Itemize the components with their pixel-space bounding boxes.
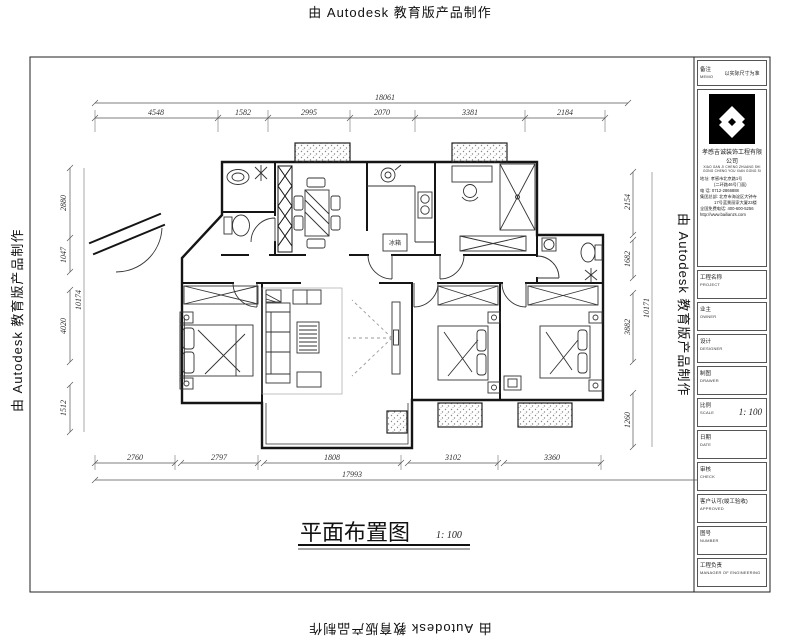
dimension-bottom: 2760 2797 1808 3102 3360 17993 xyxy=(92,453,713,483)
field-drawer-en: DRAWER xyxy=(700,378,764,384)
field-approved-zh: 客户认可(竣工验收) xyxy=(700,499,764,506)
field-owner-en: OWNER xyxy=(700,314,764,320)
field-date-en: DATE xyxy=(700,442,764,448)
memo-box: 备注 MEMO 以实际尺寸为准 xyxy=(697,60,767,86)
svg-text:3381: 3381 xyxy=(461,108,478,117)
cad-sheet: 由 Autodesk 教育版产品制作 由 Autodesk 教育版产品制作 由 … xyxy=(0,0,800,640)
address-label: 地址: xyxy=(700,176,710,181)
svg-text:3360: 3360 xyxy=(543,453,560,462)
dining-set xyxy=(294,178,340,248)
bed xyxy=(180,325,253,376)
fridge-label: 冰箱 xyxy=(389,239,401,247)
field-owner-zh: 业主 xyxy=(700,307,764,314)
svg-text:2070: 2070 xyxy=(374,108,390,117)
svg-text:1047: 1047 xyxy=(59,246,68,263)
phone-label: 电 话: xyxy=(700,188,711,193)
svg-text:1512: 1512 xyxy=(59,400,68,416)
bedroom1-furniture xyxy=(180,286,258,389)
svg-text:18061: 18061 xyxy=(375,93,395,102)
bathroom1-fixtures xyxy=(224,165,267,236)
field-check: 审核 CHECK xyxy=(697,462,767,491)
living-room-furniture xyxy=(262,288,400,394)
field-manager-en: MANAGER OF ENGINEERING xyxy=(700,570,764,576)
field-date: 日期 DATE xyxy=(697,430,767,459)
svg-text:1808: 1808 xyxy=(324,453,340,462)
field-owner: 业主 OWNER xyxy=(697,302,767,331)
study-furniture xyxy=(452,164,535,251)
field-date-zh: 日期 xyxy=(700,435,764,442)
field-check-zh: 审核 xyxy=(700,467,764,474)
svg-text:1260: 1260 xyxy=(623,412,632,428)
svg-text:2797: 2797 xyxy=(211,453,228,462)
svg-text:2154: 2154 xyxy=(623,194,632,210)
title-block: 备注 MEMO 以实际尺寸为准 孝感吉诚装饰工程有限公司 XIAO GAN JI… xyxy=(697,60,767,590)
hotline-label: 全国免费电话: xyxy=(700,206,726,211)
field-project-en: PROJECT xyxy=(700,282,764,288)
floor-plan-canvas: 冰箱 18061 4548 1582 2995 2070 3381 2184 xyxy=(0,0,800,640)
kitchen-fixtures xyxy=(367,165,435,251)
svg-text:10174: 10174 xyxy=(74,290,83,310)
company-website: http://www.bailianzs.com xyxy=(700,212,764,218)
field-check-en: CHECK xyxy=(700,474,764,480)
dimension-left: 2880 1047 4020 1512 10174 xyxy=(59,165,84,435)
memo-label-en: MEMO xyxy=(700,74,720,80)
field-designer: 设计 DESIGNER xyxy=(697,334,767,363)
svg-text:2184: 2184 xyxy=(557,108,573,117)
company-logo xyxy=(709,94,755,144)
field-scale: 比例 SCALE 1: 100 xyxy=(697,398,767,427)
drawing-title-text: 平面布置图 xyxy=(300,520,410,545)
field-project: 工程名称 PROJECT xyxy=(697,270,767,299)
svg-text:1582: 1582 xyxy=(235,108,251,117)
dimension-right: 2154 1682 3882 1260 10171 xyxy=(623,169,652,450)
drawing-title: 平面布置图 1: 100 xyxy=(298,520,470,549)
bathroom2-fixtures xyxy=(542,238,602,282)
company-pinyin-2: GONG CHENG YOU XIAN GONG SI xyxy=(700,169,764,173)
coffee-table xyxy=(297,322,319,353)
field-designer-en: DESIGNER xyxy=(700,346,764,352)
phone-value: 0712-2866888 xyxy=(712,188,739,193)
svg-text:2995: 2995 xyxy=(301,108,317,117)
memo-value: 以实际尺寸为准 xyxy=(720,70,764,77)
field-manager: 工程负责 MANAGER OF ENGINEERING xyxy=(697,558,767,587)
hotline-value: 400-600-5256 xyxy=(727,206,753,211)
svg-text:2760: 2760 xyxy=(127,453,143,462)
field-approved: 客户认可(竣工验收) APPROVED xyxy=(697,494,767,523)
field-number-en: NUMBER xyxy=(700,538,764,544)
field-approved-en: APPROVED xyxy=(700,506,764,512)
field-designer-zh: 设计 xyxy=(700,339,764,346)
field-project-zh: 工程名称 xyxy=(700,275,764,282)
company-name: 孝感吉诚装饰工程有限公司 xyxy=(700,147,764,165)
field-scale-value: 1: 100 xyxy=(739,407,762,417)
hq-label: 集团总部: xyxy=(700,194,718,199)
hq-line1: 北京市海淀区大钟寺 xyxy=(719,194,757,199)
field-drawer-zh: 制图 xyxy=(700,371,764,378)
svg-text:10171: 10171 xyxy=(642,298,651,318)
svg-text:2880: 2880 xyxy=(59,195,68,211)
memo-label-zh: 备注 xyxy=(700,67,720,74)
svg-text:1682: 1682 xyxy=(623,251,632,267)
field-drawer: 制图 DRAWER xyxy=(697,366,767,395)
drawing-title-scale: 1: 100 xyxy=(436,530,462,541)
field-manager-zh: 工程负责 xyxy=(700,563,764,570)
svg-text:17993: 17993 xyxy=(342,470,362,479)
bedroom2-furniture xyxy=(438,286,500,393)
company-box: 孝感吉诚装饰工程有限公司 XIAO GAN JI CHENG ZHUANG SH… xyxy=(697,89,767,267)
windows xyxy=(180,318,408,444)
field-number: 图号 NUMBER xyxy=(697,526,767,555)
bedroom3-furniture xyxy=(504,286,602,391)
svg-text:3102: 3102 xyxy=(444,453,461,462)
address-value: 孝感市北京路1号 xyxy=(711,176,743,181)
dimensions: 18061 4548 1582 2995 2070 3381 2184 2760… xyxy=(59,93,713,483)
svg-text:4548: 4548 xyxy=(148,108,164,117)
field-number-zh: 图号 xyxy=(700,531,764,538)
svg-text:4020: 4020 xyxy=(59,318,68,334)
dimension-top: 18061 4548 1582 2995 2070 3381 2184 xyxy=(92,93,631,132)
svg-text:3882: 3882 xyxy=(623,319,632,336)
